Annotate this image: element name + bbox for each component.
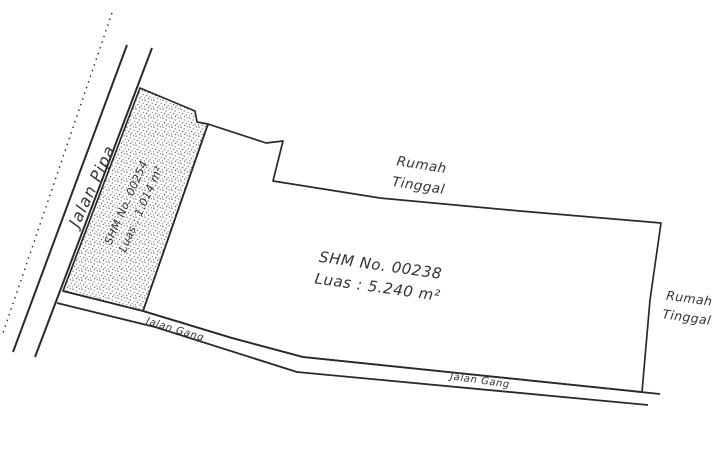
adjacent-east-label: Rumah Tinggal: [661, 285, 715, 330]
adjacent-north-label: Rumah Tinggal: [390, 151, 449, 201]
cadastral-map: Jalan Pipa Jalan Gang Jalan Gang SHM No.…: [0, 0, 715, 457]
